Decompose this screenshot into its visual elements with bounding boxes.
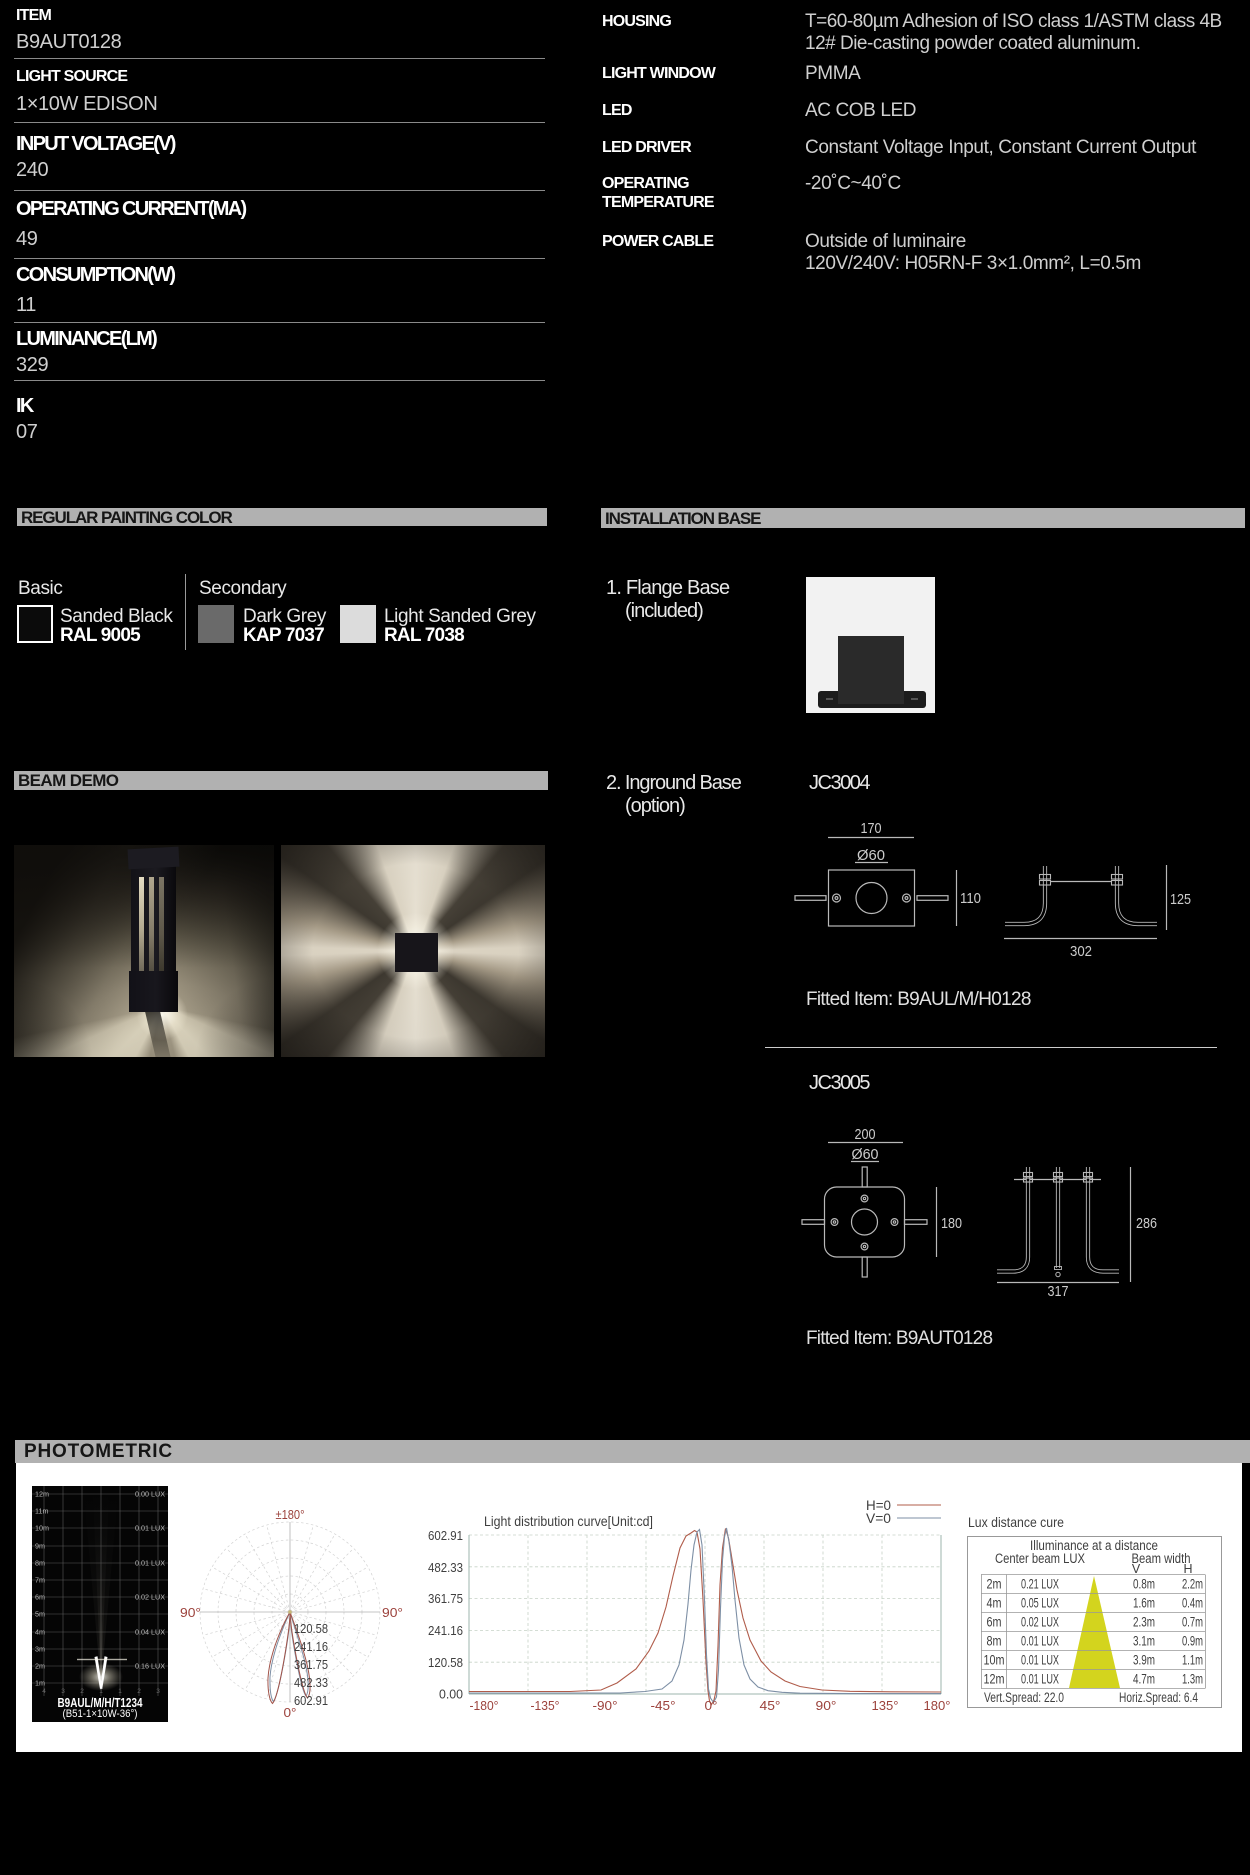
svg-text:7m: 7m [35,1576,45,1585]
svg-text:286: 286 [1136,1215,1157,1232]
svg-text:3: 3 [156,1688,160,1695]
svg-text:90°: 90° [382,1605,403,1620]
svg-text:0°: 0° [705,1698,718,1713]
svg-text:125: 125 [1170,891,1191,908]
svg-text:0.01 LUX: 0.01 LUX [1021,1634,1059,1649]
svg-text:1.3m: 1.3m [1182,1672,1203,1687]
svg-text:602.91: 602.91 [428,1528,463,1543]
svg-text:0.00: 0.00 [439,1687,463,1702]
svg-text:1.6m: 1.6m [1133,1596,1155,1611]
svg-text:361.75: 361.75 [294,1657,328,1672]
svg-text:482.33: 482.33 [428,1560,463,1575]
svg-text:V: V [1132,1562,1141,1576]
svg-text:Vert.Spread: 22.0: Vert.Spread: 22.0 [984,1690,1064,1705]
svg-text:9m: 9m [35,1542,45,1551]
svg-text:3.9m: 3.9m [1133,1653,1155,1668]
svg-text:4: 4 [42,1688,46,1695]
svg-text:10m: 10m [984,1653,1005,1668]
svg-text:0.04 LUX: 0.04 LUX [135,1628,165,1637]
svg-text:0.01 LUX: 0.01 LUX [135,1559,165,1568]
svg-text:Light distribution curve[Unit:: Light distribution curve[Unit:cd] [484,1513,653,1529]
svg-text:4m: 4m [987,1596,1002,1611]
svg-text:8m: 8m [987,1634,1002,1649]
svg-text:0.01 LUX: 0.01 LUX [1021,1672,1059,1687]
svg-text:361.75: 361.75 [428,1591,463,1606]
svg-text:120.58: 120.58 [294,1621,328,1636]
svg-text:(B51-1×10W-36°): (B51-1×10W-36°) [63,1708,138,1720]
svg-text:-180°: -180° [470,1698,499,1713]
svg-text:3: 3 [61,1688,65,1695]
svg-text:200: 200 [855,1126,876,1143]
svg-text:6m: 6m [987,1615,1002,1630]
svg-text:302: 302 [1070,943,1092,960]
svg-text:0.00 LUX: 0.00 LUX [135,1490,165,1499]
svg-text:1: 1 [118,1688,122,1695]
svg-text:170: 170 [861,820,882,837]
svg-text:8m: 8m [35,1559,45,1568]
svg-text:4m: 4m [35,1628,45,1637]
svg-text:1: 1 [99,1688,103,1695]
svg-text:Horiz.Spread: 6.4: Horiz.Spread: 6.4 [1119,1690,1198,1705]
svg-text:-45°: -45° [651,1698,676,1713]
svg-text:180°: 180° [924,1698,951,1713]
svg-text:-135°: -135° [531,1698,560,1713]
svg-text:H: H [1183,1562,1192,1576]
svg-text:±180°: ±180° [276,1507,305,1522]
svg-text:Ø60: Ø60 [852,1146,879,1163]
svg-text:Lux distance cure: Lux distance cure [968,1514,1064,1530]
svg-text:0.8m: 0.8m [1133,1577,1155,1592]
svg-text:45°: 45° [760,1698,781,1713]
svg-text:0.02 LUX: 0.02 LUX [1021,1615,1059,1630]
svg-text:2m: 2m [987,1577,1002,1592]
svg-text:317: 317 [1048,1283,1069,1300]
svg-text:110: 110 [960,890,981,907]
svg-text:0.4m: 0.4m [1182,1596,1203,1611]
svg-text:2m: 2m [35,1662,45,1671]
svg-text:V=0: V=0 [866,1511,891,1526]
svg-text:602.91: 602.91 [294,1693,328,1708]
svg-text:0.05 LUX: 0.05 LUX [1021,1596,1059,1611]
svg-text:0.02 LUX: 0.02 LUX [135,1593,165,1602]
svg-text:2.3m: 2.3m [1133,1615,1155,1630]
svg-text:241.16: 241.16 [294,1639,328,1654]
svg-text:Center beam LUX: Center beam LUX [995,1551,1085,1566]
svg-text:241.16: 241.16 [428,1623,463,1638]
svg-text:4.7m: 4.7m [1133,1672,1155,1687]
svg-text:0.21 LUX: 0.21 LUX [1021,1577,1059,1592]
svg-text:120.58: 120.58 [428,1655,463,1670]
svg-text:0.7m: 0.7m [1182,1615,1203,1630]
svg-text:Beam width: Beam width [1132,1551,1191,1566]
svg-text:3.1m: 3.1m [1133,1634,1155,1649]
svg-text:2: 2 [137,1688,141,1695]
svg-text:1m: 1m [35,1679,45,1688]
svg-text:135°: 135° [872,1698,899,1713]
svg-text:482.33: 482.33 [294,1675,328,1690]
svg-text:2: 2 [80,1688,84,1695]
svg-text:0.16 LUX: 0.16 LUX [135,1662,165,1671]
svg-text:0.9m: 0.9m [1182,1634,1203,1649]
svg-text:Ø60: Ø60 [857,847,885,864]
svg-text:5m: 5m [35,1610,45,1619]
svg-text:3m: 3m [35,1645,45,1654]
svg-text:6m: 6m [35,1593,45,1602]
svg-text:0.01 LUX: 0.01 LUX [1021,1653,1059,1668]
svg-text:11m: 11m [35,1507,48,1516]
svg-text:90°: 90° [180,1605,201,1620]
svg-text:2.2m: 2.2m [1182,1577,1203,1592]
svg-text:90°: 90° [816,1698,837,1713]
svg-text:-90°: -90° [593,1698,618,1713]
svg-text:12m: 12m [35,1490,49,1499]
svg-text:0.01 LUX: 0.01 LUX [135,1524,165,1533]
svg-text:10m: 10m [35,1524,49,1533]
svg-text:180: 180 [941,1215,962,1232]
svg-text:1.1m: 1.1m [1182,1653,1203,1668]
svg-text:12m: 12m [984,1672,1005,1687]
